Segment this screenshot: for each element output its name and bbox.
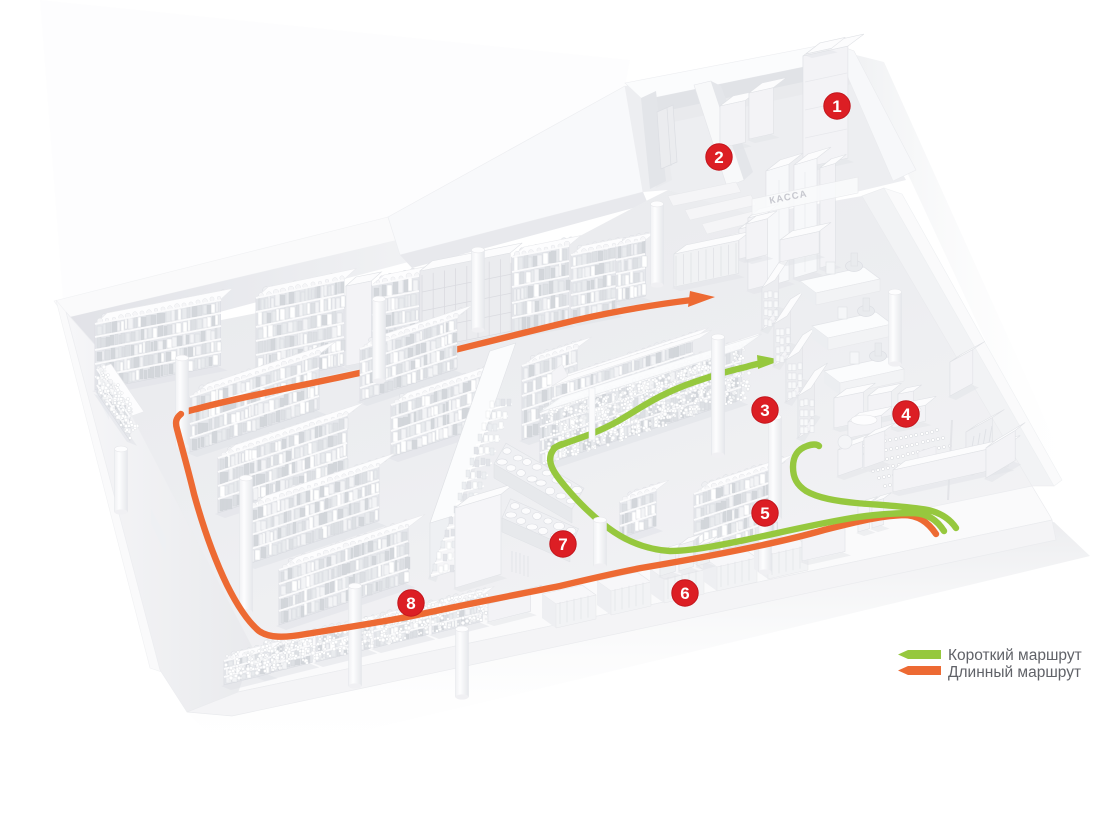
svg-text:Длинный маршрут: Длинный маршрут xyxy=(948,664,1081,681)
svg-text:Короткий маршрут: Короткий маршрут xyxy=(948,647,1082,664)
svg-text:3: 3 xyxy=(760,401,769,420)
svg-text:7: 7 xyxy=(558,535,567,554)
svg-text:1: 1 xyxy=(832,97,841,116)
svg-text:4: 4 xyxy=(901,405,911,424)
svg-text:8: 8 xyxy=(406,594,415,613)
svg-text:2: 2 xyxy=(714,148,723,167)
svg-text:6: 6 xyxy=(680,584,689,603)
svg-text:5: 5 xyxy=(760,504,769,523)
